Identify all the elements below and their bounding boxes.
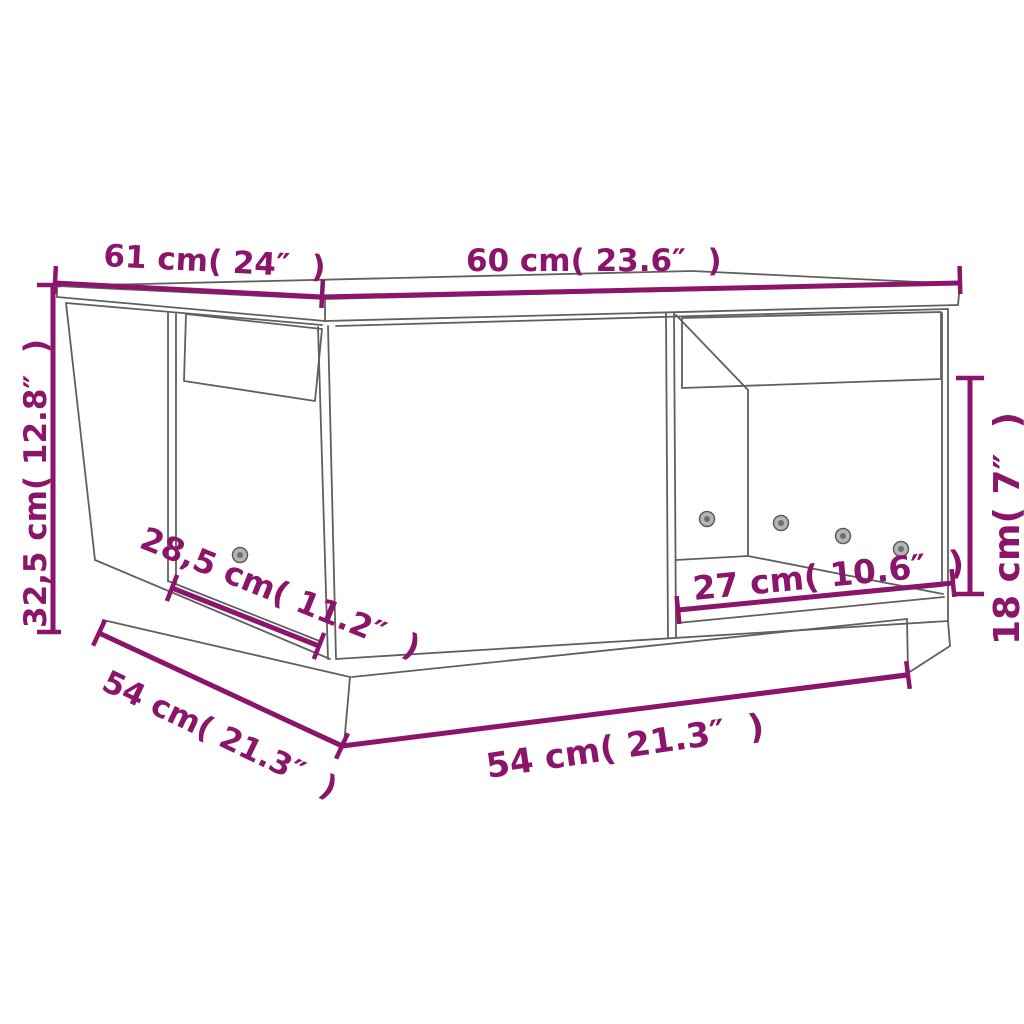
screw-icon xyxy=(774,516,789,531)
dimension-label: 32,5 cm( 12.8″ ) xyxy=(18,339,54,628)
dimension-label: 54 cm( 21.3″ ) xyxy=(483,706,766,787)
dimension-label: 54 cm( 21.3″ ) xyxy=(97,664,343,807)
dimension-top-width: 60 cm( 23.6″ ) xyxy=(322,243,960,297)
dimension-top-depth: 61 cm( 24″ ) xyxy=(54,238,326,308)
dimension-right-opening-height: 18 cm( 7″ ) xyxy=(956,378,1024,645)
dimension-label: 60 cm( 23.6″ ) xyxy=(466,243,722,279)
table-body xyxy=(66,303,950,673)
right-drawer-panel xyxy=(682,312,941,388)
dimension-right-opening-width: 27 cm( 10.6″ ) xyxy=(677,543,966,624)
dimension-height: 32,5 cm( 12.8″ ) xyxy=(18,285,61,632)
dimension-label: 18 cm( 7″ ) xyxy=(987,412,1024,645)
dimension-left-opening-width: 28,5 cm( 11.2″ ) xyxy=(135,519,426,666)
left-drawer-panel xyxy=(184,314,322,401)
dimension-base-depth: 54 cm( 21.3″ ) xyxy=(93,620,348,806)
screw-icon xyxy=(700,512,715,527)
dimension-base-width: 54 cm( 21.3″ ) xyxy=(342,661,910,787)
diagram-svg: 61 cm( 24″ ) 60 cm( 23.6″ ) 32,5 cm( 12.… xyxy=(0,0,1024,1024)
dimension-label: 61 cm( 24″ ) xyxy=(103,238,327,286)
product-diagram: 61 cm( 24″ ) 60 cm( 23.6″ ) 32,5 cm( 12.… xyxy=(0,0,1024,1024)
screw-icon xyxy=(836,529,851,544)
